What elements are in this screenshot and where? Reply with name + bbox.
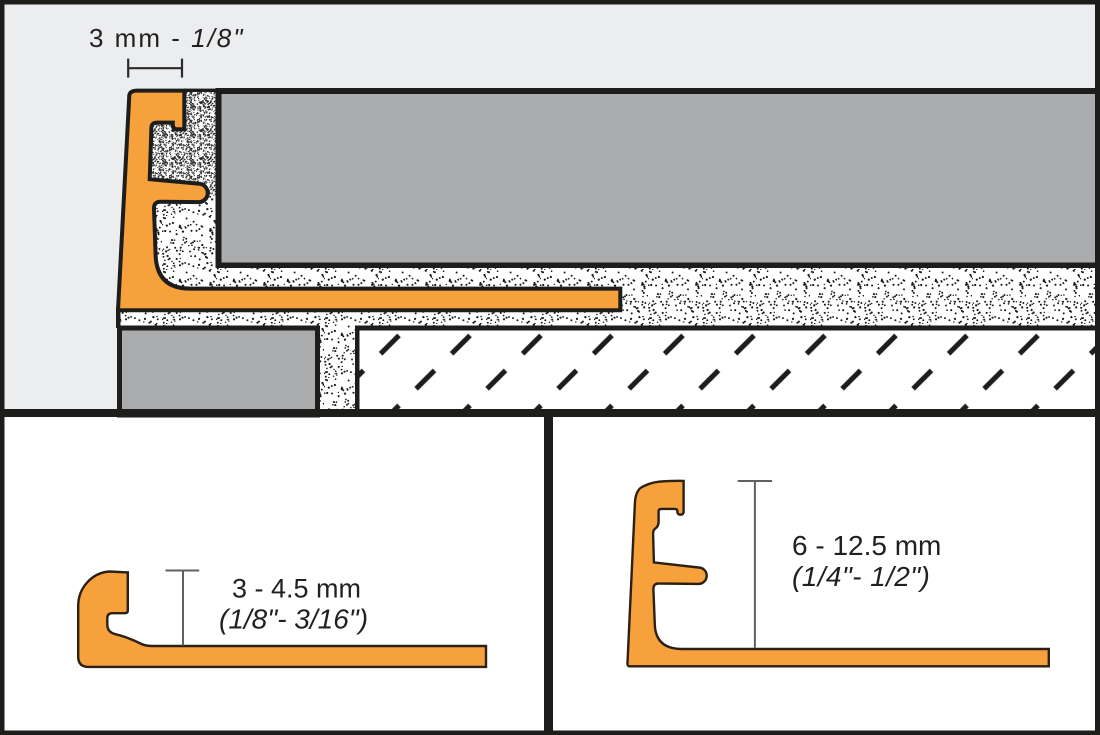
svg-text:3 - 4.5 mm: 3 - 4.5 mm bbox=[232, 574, 361, 604]
svg-text:6 - 12.5 mm: 6 - 12.5 mm bbox=[792, 530, 941, 561]
svg-text:(1/4"- 1/2"): (1/4"- 1/2") bbox=[792, 561, 930, 592]
svg-text:(1/8"- 3/16"): (1/8"- 3/16") bbox=[219, 604, 368, 635]
svg-text:3 mm - 1/8": 3 mm - 1/8" bbox=[89, 23, 244, 53]
